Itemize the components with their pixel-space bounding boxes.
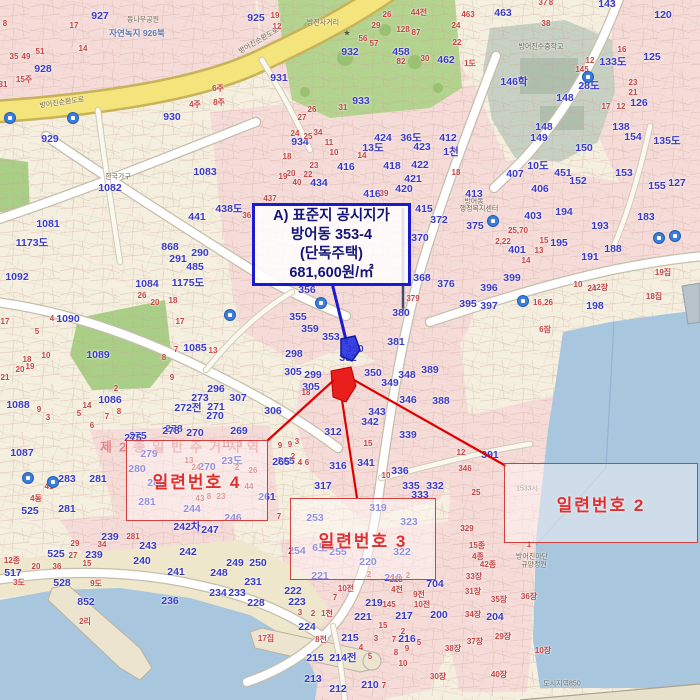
serial-number-label-3: 일련번호 3 bbox=[319, 527, 408, 552]
map-canvas[interactable]: 9279259289299309319329339341082108310811… bbox=[0, 0, 700, 700]
callout-line-1: A) 표준지 공시지가 bbox=[273, 207, 390, 226]
serial-number-box-3: 일련번호 3 bbox=[290, 498, 436, 580]
callout-line-3: (단독주택) bbox=[300, 245, 363, 264]
serial-number-label-4: 일련번호 4 bbox=[153, 468, 242, 493]
serial-number-label-2: 일련번호 2 bbox=[557, 491, 646, 516]
standard-lot-callout: A) 표준지 공시지가 방어동 353-4 (단독주택) 681,600원/㎡ bbox=[252, 203, 411, 286]
serial-number-box-2: 일련번호 2 bbox=[504, 463, 698, 543]
basemap-art bbox=[0, 0, 700, 700]
callout-line-2: 방어동 353-4 bbox=[291, 226, 372, 245]
serial-number-box-4: 일련번호 4 bbox=[126, 440, 268, 521]
callout-line-4: 681,600원/㎡ bbox=[289, 264, 373, 283]
